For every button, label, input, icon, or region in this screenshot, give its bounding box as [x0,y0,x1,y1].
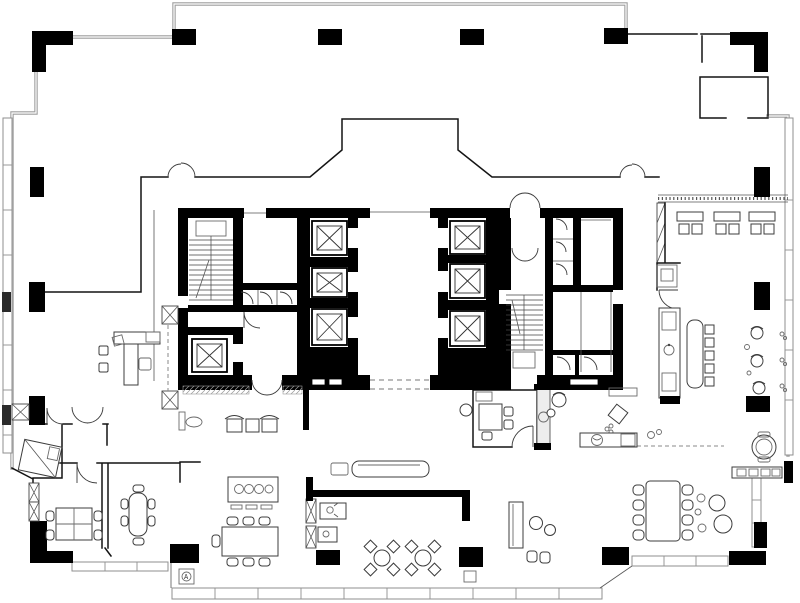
elevator-west-1 [312,221,347,255]
wall-stub [303,385,309,430]
pantry-wc-fixtures [316,503,346,565]
stair-east [506,295,543,368]
furniture: A [18,212,786,584]
pouf [530,517,543,530]
pouf [545,525,556,536]
floor-sign-label: A [184,573,189,581]
office-west [99,332,160,385]
stair-west [189,221,233,300]
dining-west: A [179,477,278,584]
cafe-table [374,550,390,566]
window-band-south-3 [632,556,728,566]
wall-pier [2,292,11,312]
cafe-tables [364,540,483,582]
interior-partitions [12,34,788,556]
side-table [139,358,151,370]
entry-mat-west-2 [283,386,302,394]
elevator-west-2 [312,268,347,297]
armchair-small [527,551,537,562]
side-table-oval [186,417,202,427]
window-band-south-1 [72,562,168,571]
wall-pier [2,405,11,425]
armchair [227,419,242,432]
meeting-sw [46,485,155,545]
wc-cells [241,219,611,372]
lobby-lounge [179,412,279,432]
dining-table [646,481,680,541]
elevator-east-3 [450,311,485,346]
floor-plan-canvas: A [0,0,800,603]
long-table [222,527,278,556]
cabinet [657,265,677,287]
cabinet-strip [537,389,550,445]
window-band-east [785,118,793,455]
chaise-lounge [18,439,62,477]
meeting-room-mid [476,392,513,440]
island-table [687,320,703,388]
stool [751,355,763,367]
entry-mat-west [183,386,249,394]
elevator-east-2 [450,264,485,298]
window-band-west [3,118,12,453]
stool [751,327,763,339]
oval-table [129,493,147,536]
armchair [262,419,277,432]
core-walls [178,208,623,390]
sofa-lounge [509,502,556,563]
elevator-west-3 [312,309,347,345]
entry-threshold-center [370,380,430,389]
coffee-table [246,419,259,432]
buffet [228,477,278,502]
media-wall [459,547,483,567]
armchair-small [540,552,550,563]
round-table [714,515,732,533]
easel [608,404,628,424]
elevator-east-1 [450,221,485,254]
elevator-service [192,339,227,372]
cafe-table [415,550,431,566]
round-table [709,495,725,511]
stool [753,382,765,394]
banquette-ne [677,212,775,234]
